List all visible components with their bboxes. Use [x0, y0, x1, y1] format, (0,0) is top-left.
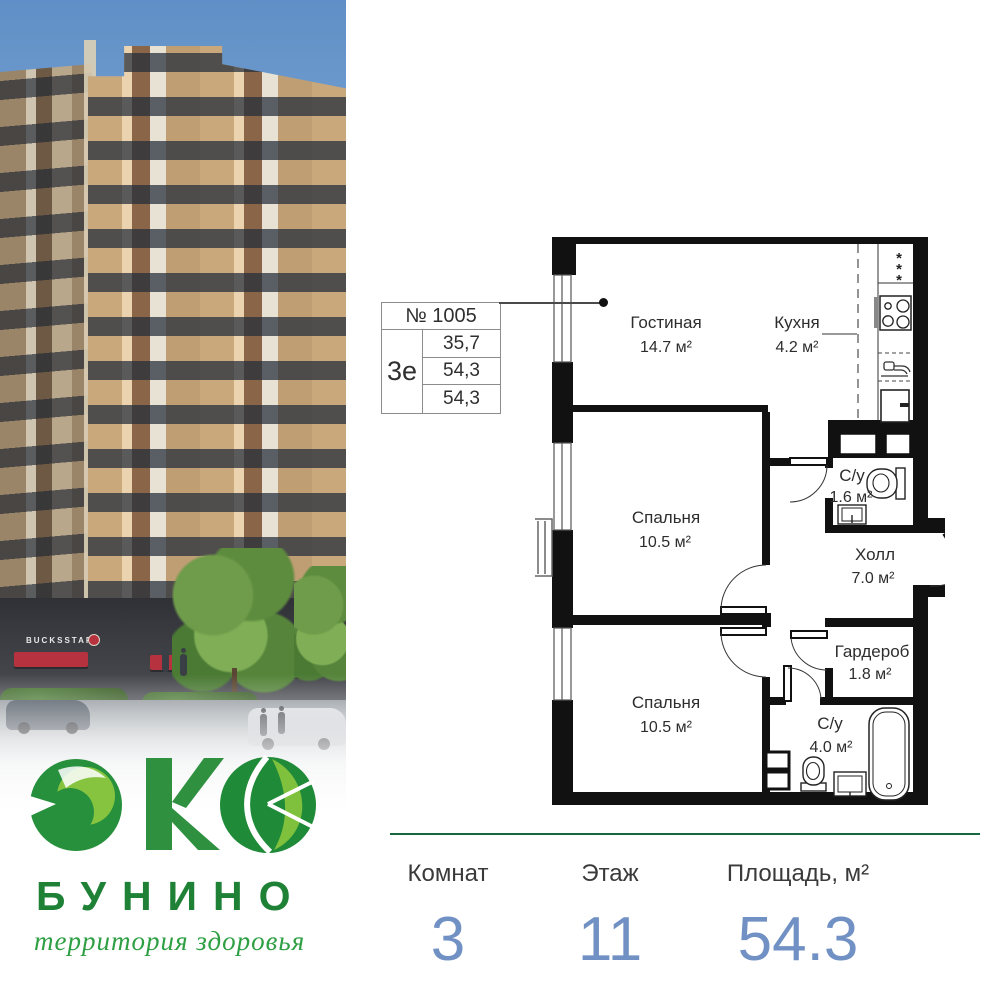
apartment-number: № 1005	[382, 303, 500, 330]
eko-bunino-logo: БУНИНО территория здоровья	[28, 748, 328, 957]
room-area: 4.2 м²	[775, 339, 819, 356]
leader-line	[499, 302, 601, 304]
room-area: 14.7 м²	[640, 339, 693, 356]
summary-area-label: Площадь, м²	[727, 860, 869, 888]
stove-icon	[874, 296, 911, 330]
logo-letter-k-icon	[146, 758, 224, 850]
room-area: 10.5 м²	[640, 719, 693, 736]
room-label: Спальня	[632, 693, 700, 712]
window	[554, 275, 571, 700]
sink-icon	[834, 772, 866, 797]
floor-plan: * * *	[535, 225, 945, 825]
page: BUCKSSTAR	[0, 0, 1000, 1000]
room-label: С/у	[839, 466, 865, 485]
summary-rooms-label: Комнат	[408, 860, 489, 888]
shaft-box	[766, 752, 789, 769]
toilet-icon	[801, 757, 826, 791]
logo-eko-graphic	[28, 748, 320, 864]
room-label: Спальня	[632, 508, 700, 527]
room-label: Кухня	[774, 313, 820, 332]
shaft-box	[886, 434, 910, 454]
door-leaf	[791, 631, 827, 638]
summary-rooms: Комнат 3	[408, 860, 489, 975]
shaft-box	[840, 434, 876, 454]
apartment-card[interactable]: № 1005 3е 35,7 54,3 54,3	[381, 302, 501, 414]
summary-floor: Этаж 11	[578, 860, 642, 975]
apartment-type: 3е	[382, 330, 423, 413]
svg-text:*: *	[896, 272, 902, 289]
building-photo: BUCKSSTAR	[0, 0, 346, 812]
apartment-area-living: 35,7	[423, 330, 500, 358]
room-area: 7.0 м²	[851, 570, 895, 587]
summary-floor-value: 11	[578, 904, 642, 975]
summary-floor-label: Этаж	[578, 860, 642, 888]
brand-name: БУНИНО	[28, 873, 328, 920]
room-area: 1.6 м²	[829, 489, 873, 506]
door-leaf	[784, 666, 791, 701]
summary-area-value: 54.3	[727, 904, 869, 975]
shaft-box	[766, 772, 789, 789]
apartment-area-total2: 54,3	[423, 385, 500, 413]
summary-divider	[390, 833, 980, 835]
room-area: 1.8 м²	[848, 666, 892, 683]
toilet-icon	[867, 468, 905, 499]
door-leaf	[721, 628, 766, 635]
summary-area: Площадь, м² 54.3	[727, 860, 869, 975]
door-leaf	[721, 607, 766, 614]
room-area: 10.5 м²	[639, 534, 692, 551]
room-label: Гардероб	[835, 642, 910, 661]
leader-dot	[599, 298, 608, 307]
bathtub-icon	[869, 708, 909, 800]
room-label: С/у	[817, 714, 843, 733]
logo-letter-e-icon	[30, 759, 122, 851]
door-leaf	[790, 458, 827, 465]
fridge-icon	[881, 390, 909, 422]
room-label: Холл	[855, 545, 895, 564]
apartment-area-total: 54,3	[423, 358, 500, 385]
room-area: 4.0 м²	[809, 739, 853, 756]
logo-letter-o-icon	[220, 757, 316, 853]
vent-icon: * * *	[896, 250, 902, 289]
summary-rooms-value: 3	[408, 904, 489, 975]
brand-tagline: территория здоровья	[28, 926, 328, 957]
room-label: Гостиная	[630, 313, 701, 332]
photo-fade	[0, 0, 346, 812]
sink-icon	[838, 505, 866, 524]
